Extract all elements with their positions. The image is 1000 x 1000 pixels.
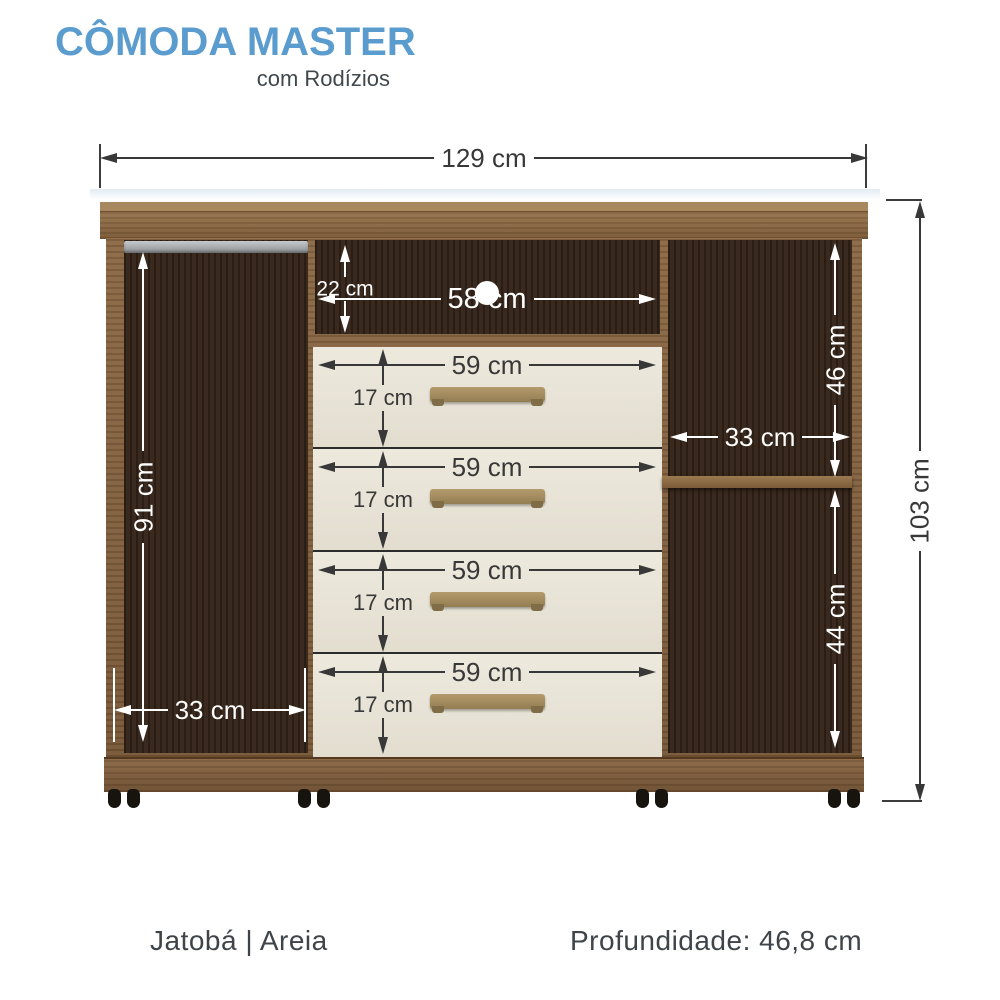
arrow-right-icon bbox=[851, 153, 868, 163]
dim-drawer-width-4-label: 59 cm bbox=[445, 659, 530, 685]
caster bbox=[296, 789, 332, 809]
arrow-down-icon bbox=[915, 784, 925, 801]
drawer-handle bbox=[430, 694, 545, 709]
dim-total-width-label: 129 cm bbox=[434, 145, 533, 171]
dim-line bbox=[687, 436, 718, 438]
dim-total-height-label: 103 cm bbox=[907, 458, 933, 543]
dim-drawer-width-2-label: 59 cm bbox=[445, 454, 530, 480]
arrow-left-icon bbox=[100, 153, 117, 163]
arrow-down-icon bbox=[378, 635, 388, 652]
dim-line bbox=[131, 709, 168, 711]
dim-total-height: 103 cm bbox=[908, 201, 932, 801]
crown-lip bbox=[100, 202, 868, 212]
dim-left-width: 33 cm bbox=[114, 698, 306, 722]
dim-line bbox=[142, 269, 144, 451]
dim-line bbox=[382, 718, 384, 737]
arrow-up-icon bbox=[340, 245, 350, 262]
dim-left-height: 91 cm bbox=[131, 252, 155, 742]
caster-wheel bbox=[847, 789, 860, 808]
dim-drawer-height-1: 17 cm bbox=[371, 349, 395, 447]
dim-drawer-width-3-label: 59 cm bbox=[445, 557, 530, 583]
dim-drawer-width-1-label: 59 cm bbox=[445, 352, 530, 378]
crown-face bbox=[100, 212, 868, 239]
dim-line bbox=[834, 260, 836, 315]
dim-drawer-width-3: 59 cm bbox=[318, 558, 656, 582]
dim-line bbox=[529, 569, 639, 571]
depth-label: Profundidade: 46,8 cm bbox=[570, 925, 862, 957]
arrow-left-icon bbox=[318, 294, 335, 304]
dim-drawer-height-3: 17 cm bbox=[371, 554, 395, 652]
dim-line bbox=[344, 262, 346, 277]
dim-drawer-width-2: 59 cm bbox=[318, 455, 656, 479]
dim-line bbox=[534, 157, 851, 159]
arrow-up-icon bbox=[138, 252, 148, 269]
dim-drawer-width-1: 59 cm bbox=[318, 353, 656, 377]
dim-drawer-height-2-label: 17 cm bbox=[353, 489, 413, 511]
arrow-right-icon bbox=[833, 432, 850, 442]
arrow-left-icon bbox=[670, 432, 687, 442]
arrow-down-icon bbox=[830, 731, 840, 748]
dim-line bbox=[802, 436, 833, 438]
dim-total-width: 129 cm bbox=[100, 146, 868, 170]
dim-line bbox=[252, 709, 289, 711]
arrow-left-icon bbox=[318, 360, 335, 370]
caster-wheel bbox=[317, 789, 330, 808]
arrow-down-icon bbox=[830, 460, 840, 477]
arrow-right-icon bbox=[639, 667, 656, 677]
dim-right-top-height-label: 46 cm bbox=[822, 325, 848, 396]
dim-line bbox=[529, 671, 639, 673]
arrow-down-icon bbox=[138, 725, 148, 742]
dim-line bbox=[534, 298, 640, 300]
dim-line bbox=[382, 411, 384, 430]
dim-left-width-label: 33 cm bbox=[168, 697, 253, 723]
reflection-strip bbox=[90, 189, 880, 200]
dim-right-width-label: 33 cm bbox=[718, 424, 803, 450]
caster-wheel bbox=[828, 789, 841, 808]
dim-line bbox=[382, 366, 384, 385]
product-subtitle: com Rodízios bbox=[55, 66, 390, 92]
plinth-base bbox=[104, 757, 864, 792]
dim-line bbox=[529, 364, 639, 366]
caster-wheel bbox=[636, 789, 649, 808]
arrow-right-icon bbox=[639, 462, 656, 472]
dim-line bbox=[834, 664, 836, 731]
arrow-right-icon bbox=[639, 294, 656, 304]
caster bbox=[106, 789, 142, 809]
right-shelf bbox=[662, 476, 852, 488]
drawer-handle bbox=[430, 489, 545, 504]
arrow-down-icon bbox=[340, 316, 350, 333]
dim-drawer-height-1-label: 17 cm bbox=[353, 387, 413, 409]
arrow-left-icon bbox=[318, 462, 335, 472]
caster bbox=[634, 789, 670, 809]
arrow-up-icon bbox=[915, 201, 925, 218]
dim-right-bottom-height: 44 cm bbox=[823, 490, 847, 748]
finish-label: Jatobá | Areia bbox=[150, 925, 328, 957]
arrow-up-icon bbox=[830, 243, 840, 260]
arrow-up-icon bbox=[378, 656, 388, 673]
arrow-down-icon bbox=[378, 737, 388, 754]
dim-line bbox=[382, 468, 384, 487]
dim-line bbox=[529, 466, 639, 468]
product-title: CÔMODA MASTER bbox=[55, 20, 395, 65]
arrow-up-icon bbox=[378, 349, 388, 366]
dim-niche-width: 58 cm bbox=[318, 287, 656, 311]
dim-left-height-label: 91 cm bbox=[130, 462, 156, 533]
dim-right-bottom-height-label: 44 cm bbox=[822, 584, 848, 655]
arrow-right-icon bbox=[639, 360, 656, 370]
arrow-left-icon bbox=[114, 705, 131, 715]
arrow-right-icon bbox=[289, 705, 306, 715]
dim-line bbox=[382, 616, 384, 635]
arrow-up-icon bbox=[378, 554, 388, 571]
arrow-left-icon bbox=[318, 667, 335, 677]
dim-line bbox=[335, 298, 441, 300]
dim-line bbox=[382, 513, 384, 532]
arrow-up-icon bbox=[830, 490, 840, 507]
dim-line bbox=[382, 673, 384, 692]
arrow-down-icon bbox=[378, 532, 388, 549]
arrow-left-icon bbox=[318, 565, 335, 575]
arrow-down-icon bbox=[378, 430, 388, 447]
dim-right-width: 33 cm bbox=[670, 425, 850, 449]
drawer-handle bbox=[430, 387, 545, 402]
dim-line bbox=[117, 157, 434, 159]
drawer-handle bbox=[430, 592, 545, 607]
arrow-right-icon bbox=[639, 565, 656, 575]
dim-niche-width-label: 58 cm bbox=[441, 285, 534, 314]
dim-line bbox=[834, 507, 836, 574]
dim-drawer-height-4: 17 cm bbox=[371, 656, 395, 754]
product-diagram-page: CÔMODA MASTER com Rodízios bbox=[0, 0, 1000, 1000]
caster bbox=[826, 789, 862, 809]
dim-drawer-height-4-label: 17 cm bbox=[353, 694, 413, 716]
dim-line bbox=[382, 571, 384, 590]
caster-wheel bbox=[108, 789, 121, 808]
arrow-up-icon bbox=[378, 451, 388, 468]
dim-line bbox=[919, 218, 921, 451]
dim-drawer-width-4: 59 cm bbox=[318, 660, 656, 684]
caster-wheel bbox=[298, 789, 311, 808]
dim-drawer-height-2: 17 cm bbox=[371, 451, 395, 549]
caster-wheel bbox=[127, 789, 140, 808]
caster-wheel bbox=[655, 789, 668, 808]
dim-line bbox=[919, 551, 921, 784]
crown-top bbox=[100, 202, 868, 238]
dim-drawer-height-3-label: 17 cm bbox=[353, 592, 413, 614]
